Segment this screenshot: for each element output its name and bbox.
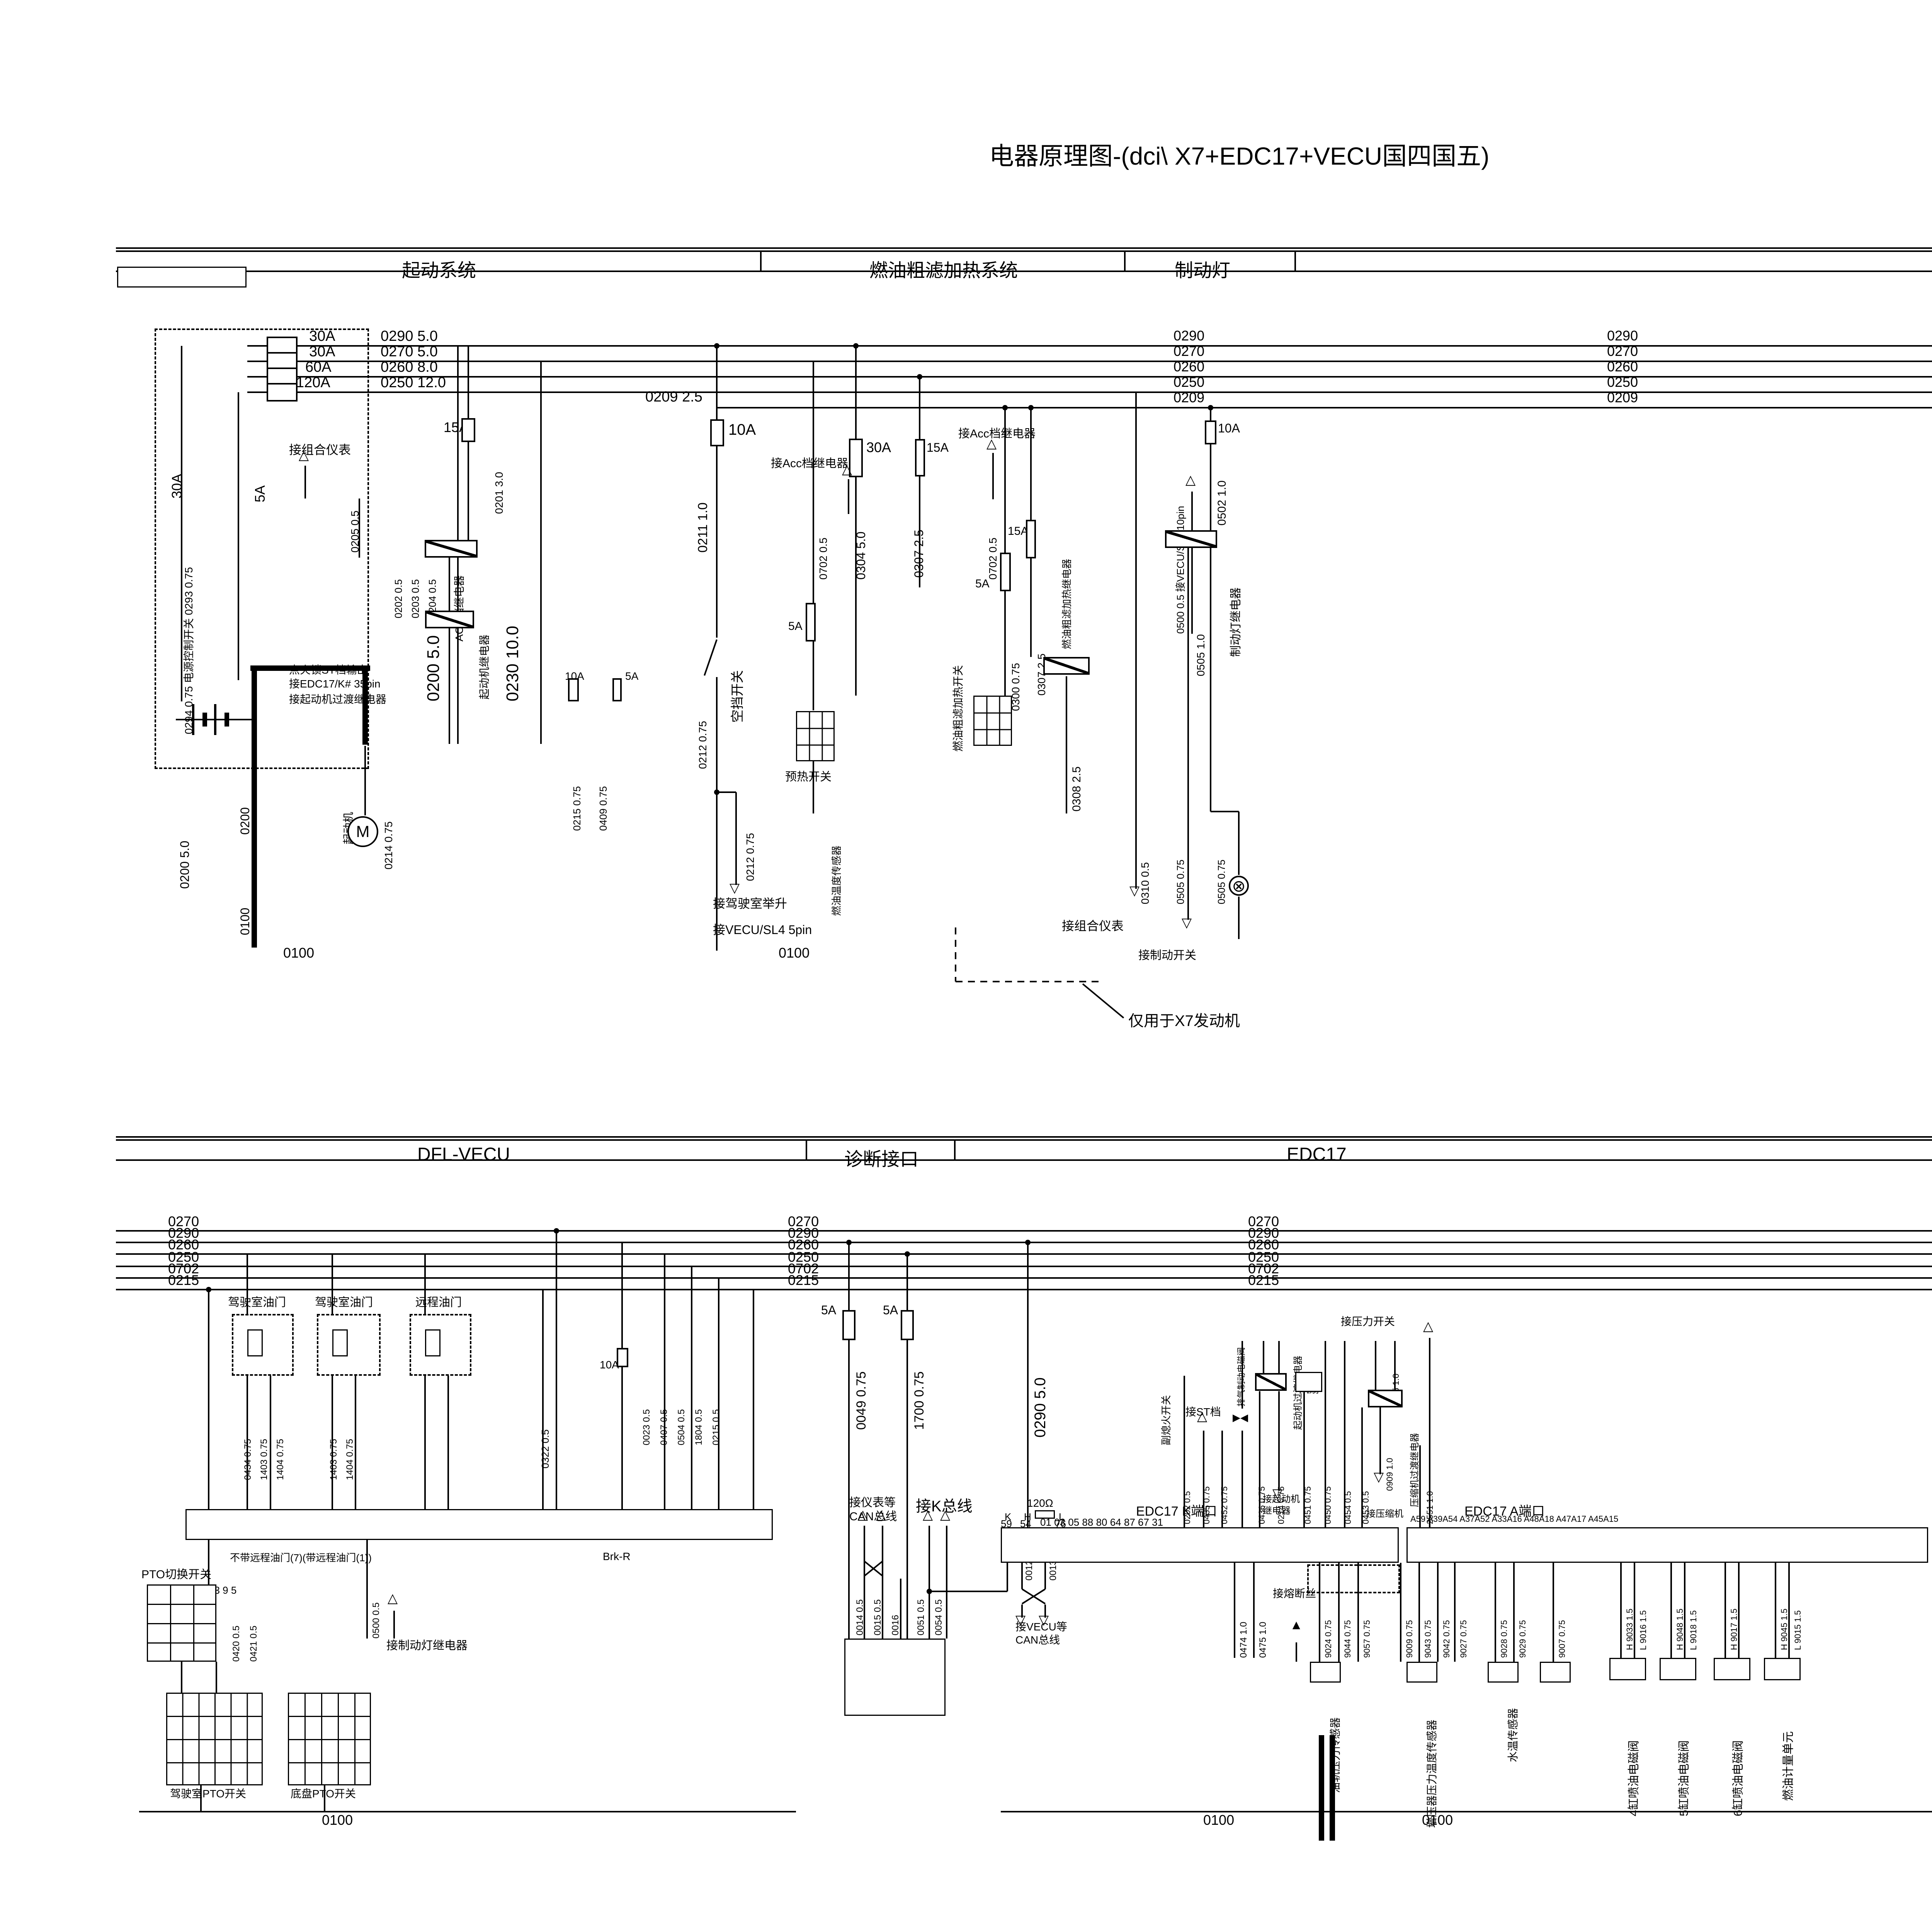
wire-label: PTO切换开关	[141, 1569, 211, 1581]
wire-label: 0212 0.75	[745, 833, 756, 881]
ground-bar	[1330, 1735, 1335, 1841]
wire-label: 5A	[975, 578, 990, 590]
wire-label: 10A	[600, 1360, 619, 1370]
wire-label: 驾驶室PTO开关	[170, 1788, 246, 1799]
wire-label: 0201 3.0	[494, 472, 505, 514]
wire-label: 继电器	[1263, 1506, 1291, 1516]
wire-label: 0909 1.0	[1386, 1458, 1394, 1491]
x7-only-note: 仅用于X7发动机	[1128, 1013, 1240, 1029]
wire-label: 0015 0.5	[873, 1600, 883, 1635]
bus-wire-label: 0260	[1173, 360, 1204, 374]
wire-label: 空挡开关	[731, 670, 744, 723]
sensor-box	[1406, 1662, 1437, 1683]
starter-motor: M	[347, 816, 378, 847]
arrow-up: △	[986, 437, 997, 450]
wire-label: 0200	[239, 807, 251, 835]
can-terminator-resistor	[1035, 1510, 1055, 1519]
arrow-upsolid: ▲	[1290, 1618, 1303, 1632]
ground-bar	[250, 665, 370, 671]
bus-wire-label: 0215	[788, 1273, 819, 1287]
wire-label: 0505 1.0	[1196, 634, 1206, 676]
strip-divider	[1294, 252, 1296, 271]
wire-label: 9009 0.75	[1405, 1620, 1414, 1658]
wire-label: 1403 0.75	[260, 1439, 269, 1480]
junction-dot	[905, 1251, 910, 1257]
fuse-5a	[1000, 553, 1011, 591]
cab-pto-switch-grid	[166, 1693, 263, 1785]
wire-label: 0407 0.5	[660, 1409, 669, 1445]
wire-label: 0452 0.75	[1220, 1486, 1229, 1524]
wire-label: 5缸喷油电磁阀	[1679, 1740, 1690, 1816]
preheat-switch-grid	[796, 711, 835, 761]
wire-label: 0420 0.5	[232, 1626, 241, 1662]
wire-label: 0202 0.5	[1183, 1491, 1192, 1524]
section-strip: 起动系统燃油粗滤加热系统制动灯	[116, 247, 1932, 272]
section-title: 燃油粗滤加热系统	[869, 255, 1018, 282]
junction-dot	[846, 1240, 852, 1245]
edc17-a-port	[1406, 1527, 1928, 1563]
cab-throttle-enclosure	[317, 1314, 381, 1376]
wire-label: H 9045 1.5	[1780, 1608, 1789, 1650]
fuse-15a	[915, 439, 925, 476]
wire-label: 0304 5.0	[855, 531, 867, 580]
section-title: EDC17	[1287, 1144, 1347, 1165]
wire-label: 0290 5.0	[381, 329, 438, 344]
wire-label: 0290 5.0	[1032, 1377, 1048, 1438]
wire-label: 0435 0.75	[1202, 1486, 1211, 1524]
wire-label: 压缩机过渡继电器	[1410, 1433, 1420, 1507]
wire-label: 9044 0.75	[1344, 1620, 1352, 1658]
wire-label: H 9017 1.5	[1730, 1608, 1738, 1650]
sensor-box	[1540, 1662, 1571, 1683]
section-title: 诊断接口	[844, 1144, 918, 1171]
wire-label: 1404 0.75	[276, 1439, 285, 1480]
wire-label: L 9015 1.5	[1794, 1610, 1802, 1650]
battery-cell	[224, 713, 229, 727]
schematic-canvas: 电器原理图-(dci\ X7+EDC17+VECU国四国五) 7-1 37000…	[0, 0, 1932, 1916]
arrow-down: ▽	[1129, 884, 1139, 897]
wire-label: 0100	[1203, 1813, 1234, 1827]
wire-label: 1404 0.75	[345, 1439, 355, 1480]
fuse-5a	[806, 603, 816, 642]
wire-label: 接组合仪表	[1062, 920, 1124, 932]
wire-label: 6缸喷油电磁阀	[1733, 1740, 1744, 1816]
wire-label: 0504 0.5	[677, 1409, 686, 1445]
wire-label: 2551 1.0	[1426, 1491, 1434, 1524]
wire-label: 起动机继电器	[479, 635, 490, 699]
wire-label: 0049 0.75	[855, 1371, 868, 1430]
section-title: 起动系统	[402, 255, 476, 282]
arrow-up: △	[876, 1508, 886, 1521]
junction-dot	[917, 374, 922, 379]
ground-bar	[252, 665, 257, 948]
fuse-5a	[901, 1310, 914, 1340]
wire-label: 0051 0.5	[917, 1600, 926, 1635]
fuel-heater-relay	[1043, 657, 1090, 675]
arrow-up: △	[1423, 1320, 1433, 1333]
battery-cell	[192, 704, 194, 735]
wire-label: 燃油温度传感器	[832, 846, 842, 916]
wire-label: L 9016 1.5	[1639, 1610, 1648, 1650]
wire-label: 9028 0.75	[1500, 1620, 1509, 1658]
wire-label: 0322 0.5	[540, 1429, 550, 1468]
wire-label: ACC档继电器	[454, 575, 465, 642]
wire-label: 9057 0.75	[1363, 1620, 1371, 1658]
wire-label: 底盘PTO开关	[291, 1788, 356, 1799]
wire-label: 0100	[779, 946, 810, 960]
strip-divider	[1124, 252, 1126, 271]
wire-label: 0230 10.0	[504, 626, 521, 701]
wire-label: 0215 0.5	[712, 1409, 721, 1445]
injector-valve	[1609, 1658, 1646, 1680]
arrow-up: △	[1197, 1410, 1207, 1423]
wire-label: 0014 0.5	[855, 1600, 865, 1635]
brake-lamp: ⊗	[1229, 876, 1249, 896]
arrow-up: △	[388, 1592, 398, 1605]
wire-label: Brk-R	[603, 1551, 631, 1562]
fuel-metering-unit	[1764, 1658, 1801, 1680]
junction-dot	[714, 343, 719, 349]
wire-label: 0054 0.5	[934, 1600, 944, 1635]
wire-label: 驾驶室油门	[228, 1297, 286, 1309]
wire-label: 0474 1.0	[1239, 1622, 1248, 1658]
wire-label: 0200 5.0	[425, 635, 442, 701]
wire-label: 0421 0.5	[249, 1626, 259, 1662]
wire-label: 燃油计量单元	[1783, 1731, 1794, 1801]
sensor-enclosure	[1307, 1564, 1400, 1593]
bus-wire-label: 0209	[1173, 391, 1204, 405]
wire-label: 预热开关	[785, 771, 832, 783]
wire-label: 4缸喷油电磁阀	[1628, 1740, 1640, 1816]
power-switch-mini-box	[117, 267, 247, 288]
wire	[1083, 984, 1124, 1018]
wire-label: 0212 0.75	[697, 721, 708, 769]
wire-label: 5A	[625, 671, 638, 682]
wire-label: 接VECU/SL4 5pin	[713, 924, 812, 936]
wire-label: 不带远程油门(7)(带远程油门(1))	[230, 1553, 372, 1563]
wire-label: 排气制动电磁阀	[1237, 1347, 1246, 1407]
wire-label: 0502 1.0	[1216, 480, 1228, 526]
bus-wire-label: 0290	[1173, 329, 1204, 343]
junction-dot	[927, 1589, 932, 1594]
arrow-down: ▽	[1015, 1613, 1026, 1627]
bus-wire-label: 0260	[1607, 360, 1638, 374]
wire-label: 0450 0.75	[1324, 1486, 1332, 1524]
ground-bar	[1319, 1735, 1324, 1841]
arrow-up: △	[299, 449, 309, 462]
fuse-5a	[842, 1310, 855, 1340]
wire-label: 0100	[239, 908, 251, 935]
wire-label: 9043 0.75	[1424, 1620, 1432, 1658]
wire-label: 10A	[728, 422, 756, 437]
wire-label: 0211 1.0	[696, 502, 709, 553]
wire-label: CAN总线	[849, 1511, 897, 1523]
wire-label: 接驾驶室举升	[713, 897, 787, 910]
wire-label: 燃油粗滤加热开关	[953, 665, 964, 752]
arrow-up: △	[1185, 473, 1196, 487]
injector-valve	[1714, 1658, 1750, 1680]
wire-label: 0300 0.75	[1010, 663, 1021, 711]
starter-transition-relay	[1255, 1373, 1287, 1391]
junction-dot	[206, 1287, 211, 1292]
wire-label: H 9048 1.5	[1676, 1608, 1684, 1650]
battery-cell	[202, 713, 207, 727]
battery-enclosure	[155, 328, 369, 769]
wire-label: 0505 0.75	[1216, 859, 1226, 904]
junction-dot	[853, 343, 859, 349]
wire-label: 30A	[866, 441, 891, 454]
wire-label: 0451 0.75	[1304, 1486, 1312, 1524]
edc17-k-port	[1001, 1527, 1399, 1563]
wire-label: 0702 0.5	[818, 538, 829, 580]
bus-wire-label: 0209	[1607, 391, 1638, 405]
wire-label: 0500 0.5	[372, 1603, 381, 1639]
battery-cell	[214, 704, 216, 735]
fuse-15a	[461, 418, 475, 442]
wire-label: 5A	[883, 1304, 898, 1316]
wire-label: 0505 0.75	[1175, 859, 1185, 904]
bus-wire-label: 0270	[1607, 344, 1638, 358]
arrow-down: ▽	[1272, 1487, 1282, 1500]
sensor-box	[1488, 1662, 1519, 1683]
junction-dot	[1208, 405, 1213, 410]
arrow-down: ▽	[730, 881, 740, 895]
wire-label: L 9018 1.5	[1689, 1610, 1698, 1650]
wire-label: 1700 0.75	[913, 1371, 926, 1430]
fuse-15a	[1026, 520, 1036, 558]
wire-label: 0023 0.5	[642, 1409, 651, 1445]
wire-label: 接制动开关	[1138, 950, 1196, 961]
wire-label: 0454 0.5	[1344, 1491, 1352, 1524]
wire-label: 0203 0.5	[410, 579, 420, 618]
wire-label: 副熄火开关	[1161, 1395, 1171, 1445]
wire-label: 0500 0.5 接VECU/SL2 10pin	[1175, 506, 1185, 634]
arrow-down: ▽	[1374, 1470, 1384, 1484]
wire-label: 0250 12.0	[381, 375, 446, 390]
wire-label: 接压力开关	[1341, 1316, 1395, 1327]
wire-label: 9029 0.75	[1519, 1620, 1527, 1658]
fuse-10a	[1205, 420, 1216, 444]
wire-label: 0310 0.5	[1140, 862, 1151, 904]
ground-bar	[362, 665, 368, 745]
wire-label: 0100	[322, 1813, 353, 1827]
heater-switch-grid	[973, 696, 1012, 746]
arrow-up: △	[858, 1508, 868, 1521]
wire-label: 1403 0.75	[329, 1439, 338, 1480]
bus-wire-label: 0250	[1173, 375, 1204, 389]
arrow-up: △	[842, 463, 852, 476]
strip-divider	[954, 1141, 956, 1159]
wire-label: 0270 5.0	[381, 344, 438, 359]
wire	[704, 640, 717, 676]
wire-label: 0434 0.75	[243, 1439, 253, 1480]
bus-wire-label: 0270	[1173, 344, 1204, 358]
wire-label: 0308 2.5	[1071, 766, 1083, 812]
wire-label: 9027 0.75	[1459, 1620, 1468, 1658]
sensor-box	[1310, 1662, 1341, 1683]
section-title: DFL-VECU	[417, 1144, 510, 1165]
wire-label: 9024 0.75	[1324, 1620, 1333, 1658]
fuse-10a	[710, 419, 724, 446]
wire-label: 0200 5.0	[179, 841, 191, 889]
wire-label: 0202 0.5	[393, 579, 403, 618]
wire-label: 0100	[283, 946, 314, 960]
wire-label: 接制动灯继电器	[386, 1640, 468, 1652]
wire-label: 10A	[1218, 422, 1240, 434]
wire-label: 15A	[1008, 526, 1028, 537]
brake-light-relay	[1165, 530, 1217, 548]
diagnostic-connector	[844, 1639, 946, 1716]
wire-label: 0307 2.5	[913, 529, 925, 578]
wire-label: 01 03 05 88 80 64 87 67 31	[1040, 1517, 1163, 1527]
wire-label: 15A	[927, 441, 949, 454]
bus-wire-label: 0215	[168, 1273, 199, 1287]
wire-label: 0475 1.0	[1259, 1622, 1268, 1658]
junction-dot	[1002, 405, 1008, 410]
wire-label: A59 A39A54 A37A52 A33A16 A48A18 A47A17 A…	[1410, 1515, 1618, 1523]
arrow-up: △	[940, 1508, 950, 1521]
acc-relay	[425, 540, 478, 558]
wire-label: 5A	[788, 621, 803, 632]
section-strip: DFL-VECU诊断接口EDC17手动空调及暖风系统	[116, 1136, 1932, 1161]
arrow-down: ▽	[1039, 1613, 1049, 1627]
bus-wire-label: 0215	[1248, 1273, 1279, 1287]
wire-label: 燃油粗滤加热继电器	[1062, 559, 1072, 649]
arrow-up: △	[923, 1508, 933, 1521]
wire-label: 0453 0.5	[1362, 1491, 1370, 1524]
starter-relay	[425, 611, 474, 628]
wire-label: 接Acc档继电器	[771, 458, 848, 470]
bus-wire-label: 0250	[1607, 375, 1638, 389]
page-title: 电器原理图-(dci\ X7+EDC17+VECU国四国五)	[989, 144, 1489, 168]
wire-label: 接仪表等	[849, 1497, 896, 1509]
section-title: 制动灯	[1175, 255, 1230, 282]
wire-label: ▶◀	[1233, 1412, 1248, 1423]
wire-label: 制动灯继电器	[1230, 587, 1242, 657]
junction-dot	[714, 790, 719, 795]
strip-divider	[760, 252, 762, 271]
vecu-connector-bar	[185, 1509, 773, 1540]
junction-dot	[1025, 1240, 1031, 1245]
wire-label: 水温传感器	[1508, 1708, 1519, 1762]
wire-label: 增压器压力温度传感器	[1427, 1720, 1437, 1828]
remote-throttle-enclosure	[410, 1314, 471, 1376]
arrow-down: ▽	[1182, 916, 1192, 929]
wire-label: 0209 2.5	[645, 390, 702, 404]
fan-box	[1295, 1372, 1322, 1392]
wire-label: 接压缩机	[1366, 1509, 1403, 1519]
wire-label: CAN总线	[1015, 1635, 1060, 1645]
strip-divider	[806, 1141, 807, 1159]
bus-wire-label: 0290	[1607, 329, 1638, 343]
wire-label: 0215 0.75	[572, 786, 582, 831]
wire-label: H 9033 1.5	[1626, 1608, 1634, 1650]
fuse-10a	[617, 1348, 628, 1367]
wire-label: 接Acc档继电器	[958, 428, 1036, 440]
wire-label: 0214 0.75	[383, 821, 394, 870]
chassis-pto-switch-grid	[288, 1693, 371, 1785]
cab-throttle-enclosure	[232, 1314, 294, 1376]
wire-label: 9042 0.75	[1442, 1620, 1451, 1658]
wire-label: 9007 0.75	[1558, 1620, 1566, 1658]
pto-switch-grid	[147, 1584, 216, 1662]
junction-dot	[554, 1228, 559, 1234]
wire-label: 1804 0.5	[694, 1409, 704, 1445]
wire-label: 120Ω	[1027, 1498, 1053, 1509]
wire-label: 5A	[821, 1304, 836, 1316]
fuse-5a	[612, 678, 622, 701]
wire-label: 0016	[891, 1615, 900, 1635]
wire-label: 驾驶室油门	[315, 1297, 373, 1309]
junction-dot	[1028, 405, 1034, 410]
wire-label: 0702 0.5	[988, 538, 998, 580]
compressor-transition-relay	[1368, 1390, 1403, 1407]
injector-valve	[1660, 1658, 1696, 1680]
wire-label: 0409 0.75	[598, 786, 608, 831]
wire-label: 远程油门	[415, 1297, 462, 1309]
wire-label: 0260 8.0	[381, 360, 438, 374]
fuse-10a	[568, 678, 579, 701]
